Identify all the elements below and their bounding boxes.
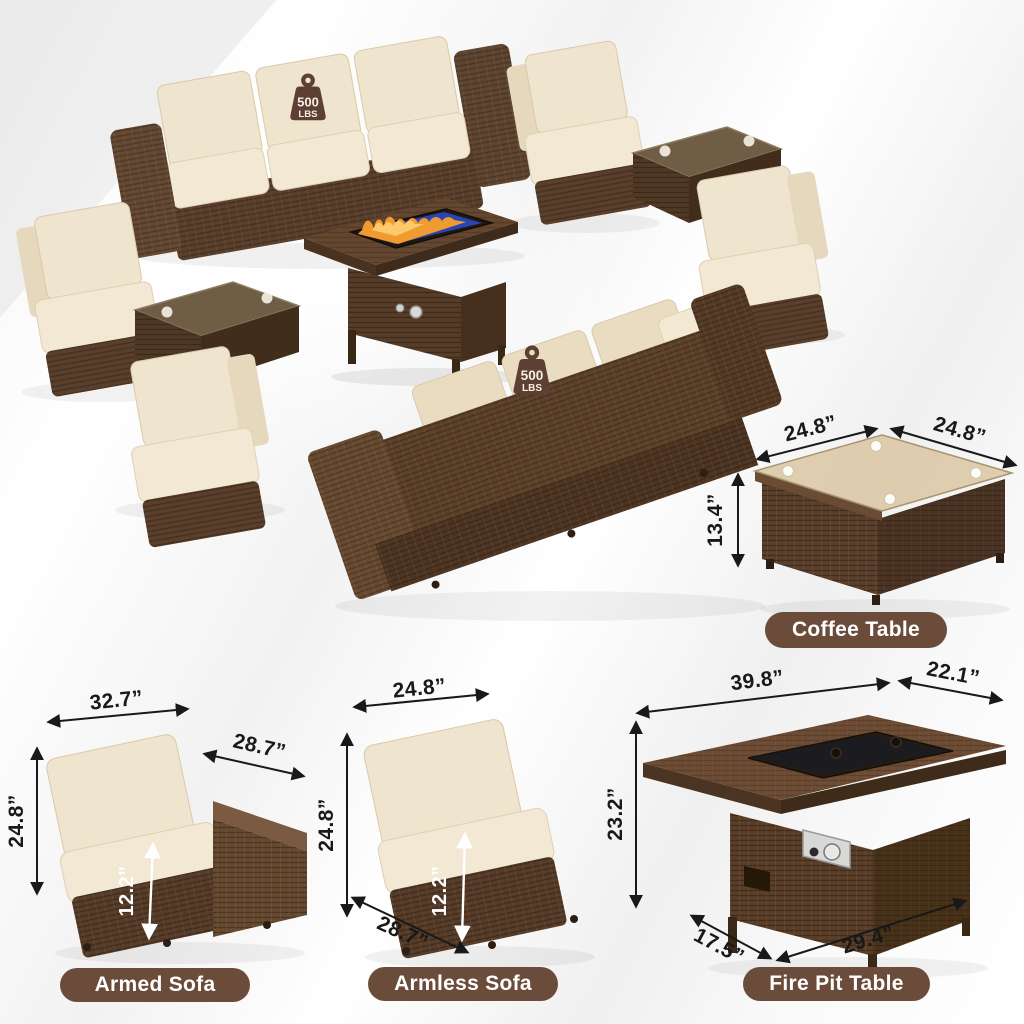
sofa-shadow: [365, 946, 595, 968]
corner-chair: [116, 341, 284, 548]
dimension-label: 24.8”: [5, 794, 28, 847]
ignition-button: [810, 848, 819, 857]
dimension-label: 32.7”: [89, 686, 144, 714]
dimension-label: 39.8”: [729, 666, 785, 695]
armless-sofa-label: Armless Sofa: [368, 967, 558, 1001]
weight-unit: LBS: [522, 383, 542, 394]
armed-sofa-illustration: [39, 729, 307, 959]
dimension-arrow: [205, 754, 303, 776]
dimension-label: 13.4”: [704, 493, 727, 546]
armed-sofa-diagram: 32.7” 28.7” 24.8” 12.2”: [15, 685, 327, 985]
armless-sofa-diagram: 24.8” 24.8” 12.2” 28.7”: [330, 685, 632, 985]
coffee-table-label: Coffee Table: [765, 612, 947, 648]
product-infographic: 500 LBS 500 LBS: [0, 0, 1024, 1024]
armed-sofa-label: Armed Sofa: [60, 968, 250, 1002]
coffee-table-illustration: [755, 435, 1012, 605]
weight-capacity-badge: 500 LBS: [508, 344, 556, 398]
dimension-label: 24.8”: [315, 798, 338, 851]
fire-pit-table-label: Fire Pit Table: [743, 967, 930, 1001]
dimension-label: 28.7”: [231, 729, 288, 763]
scene-corner-set-left-illustration: [15, 192, 335, 522]
burner-knob: [824, 844, 840, 860]
weight-value: 500: [521, 368, 544, 383]
weight-icon: [525, 345, 539, 359]
fire-pit-top: [304, 198, 518, 276]
weight-capacity-badge: 500 LBS: [285, 72, 331, 124]
dimension-label: 12.2”: [429, 866, 451, 917]
weight-value: 500: [297, 94, 319, 109]
dimension-label: 23.2”: [604, 787, 627, 840]
weight-icon: [301, 73, 315, 87]
dimension-label: 12.2”: [116, 866, 138, 917]
fire-pit-table-diagram: 39.8” 22.1” 23.2” 17.5” 29.4”: [618, 668, 1024, 1016]
weight-unit: LBS: [298, 109, 318, 120]
